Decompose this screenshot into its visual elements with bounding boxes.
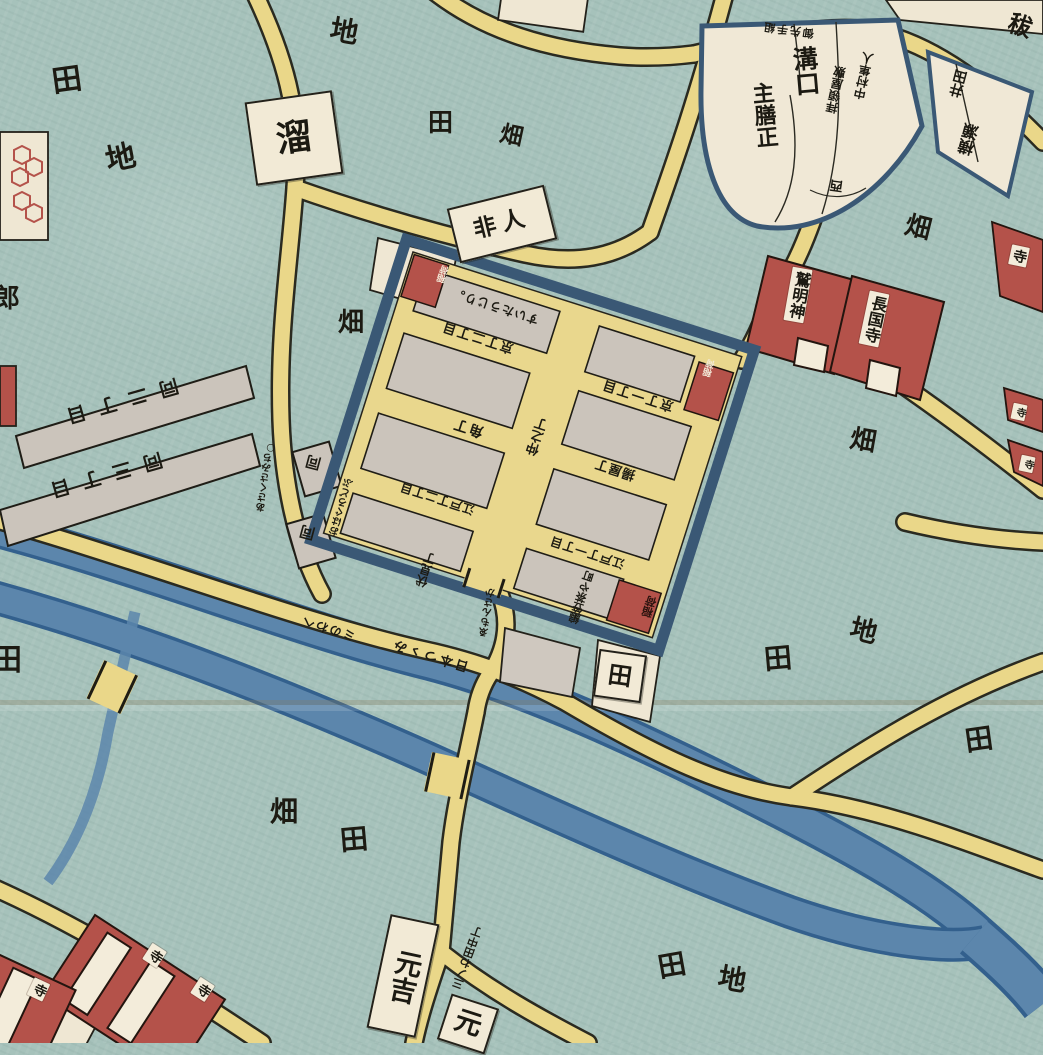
field-label-hata-4: 畑: [848, 426, 878, 457]
yoshiwara-edocho-2: 江戸丁二丁目: [398, 480, 476, 516]
ditto-box-2: 同: [298, 522, 316, 541]
field-label-hata-1: 畑: [498, 122, 525, 150]
label-layer: 田地地田畑畑畑畑地田田田畑田田地郎秡溜非人田元吉元溝口主膳正西御先手組中村隼人拝…: [0, 0, 1043, 1043]
field-label-ta-6: 田: [339, 825, 369, 856]
tame-box: 溜: [245, 90, 344, 185]
estate-nakamura: 中村隼人: [853, 51, 875, 100]
field-label-hata-5: 畑: [270, 798, 298, 827]
yoshiwara-inari-nw: 稲荷: [437, 265, 451, 285]
yoshiwara-ageyacho: 揚屋丁: [593, 456, 637, 482]
shrine-washi-myojin: 鷲明神: [783, 267, 812, 324]
field-label-ta-7: 田: [656, 950, 689, 983]
estate-mizoguchi-1: 溝口: [790, 45, 820, 97]
temple-sw-2: 寺: [190, 977, 215, 1002]
edge-label-hatsu: 秡: [1005, 11, 1035, 42]
field-label-hata-3: 畑: [902, 212, 934, 244]
yoshiwara-kyomachi-2: 京丁二丁目: [440, 319, 515, 355]
tamachi-3chome: 同三丁目: [36, 449, 164, 503]
estate-nishi: 西: [829, 177, 844, 192]
yoshiwara-edocho-1: 江戸丁一丁目: [548, 534, 626, 570]
field-label-chi-3: 地: [847, 615, 880, 648]
yoshiwara-inari-se: 稲荷: [641, 595, 658, 619]
road-nihon-tsutsumi: 日本つゝみ: [390, 637, 470, 673]
edo-woodblock-map: { "map_kind": "edo-period-woodblock-dist…: [0, 0, 1043, 1043]
yoshiwara-nakanocho: 仲之丁: [526, 417, 551, 458]
field-label-chi-4: 地: [716, 964, 749, 997]
temple-chokokuji: 長国寺: [859, 290, 890, 347]
field-label-ta-3: 田: [763, 644, 793, 675]
road-minowa-tanaka: 三ノわ田中丁: [451, 925, 484, 991]
hinin-box: 非人: [447, 185, 558, 264]
moto-box: 元: [437, 993, 499, 1054]
yoshiwara-inari-ne: 稲荷: [703, 359, 717, 379]
emonzaka-note: ゑもんさか: [480, 587, 499, 638]
estate-strip: 御先手組: [761, 20, 814, 38]
moat-note-ohaguro: おはぐろどぶ: [330, 478, 356, 538]
ditto-box-1: 同: [304, 452, 322, 471]
yoshiwara-amigasa: 編笠茶や町: [568, 570, 596, 626]
estate-yokose: 横瀬: [958, 122, 982, 157]
field-label-hata-2: 畑: [338, 310, 364, 337]
temple-sw-1: 寺: [142, 943, 167, 968]
yoshiwara-kyomachi-1: 京丁一丁目: [600, 377, 675, 413]
road-minowa-note: ミのわへ: [299, 614, 356, 642]
field-label-ta-1: 田: [50, 64, 84, 98]
road-asakusa-note: あさくさみち○: [257, 442, 277, 514]
field-label-ta-2: 田: [428, 110, 453, 136]
field-label-chi-1: 地: [103, 141, 139, 177]
estate-ida: 井田: [949, 69, 970, 100]
motoyoshi-box: 元吉: [366, 914, 439, 1038]
field-label-chi-2: 地: [328, 16, 361, 49]
estate-hairyo: 拝領屋敷: [825, 65, 847, 114]
tamachi-2chome: 同二丁目: [52, 375, 180, 429]
yoshiwara-sumicho: 角丁: [451, 415, 486, 438]
ta-box: 田: [593, 649, 647, 703]
edge-label-ro: 郎: [0, 286, 20, 313]
field-label-ta-4: 田: [963, 724, 995, 756]
temple-sw-3: 寺: [27, 977, 51, 1002]
field-label-ta-5: 田: [0, 646, 22, 677]
yoshiwara-fushimicho: 伏見丁: [415, 551, 438, 589]
temple-edge-b: 寺: [1010, 403, 1027, 422]
estate-mizoguchi-2: 主膳正: [749, 81, 777, 149]
yoshiwara-suidojiri: すいたうじり。: [450, 286, 540, 326]
temple-edge-a: 寺: [1008, 244, 1030, 267]
temple-edge-c: 寺: [1018, 455, 1035, 474]
